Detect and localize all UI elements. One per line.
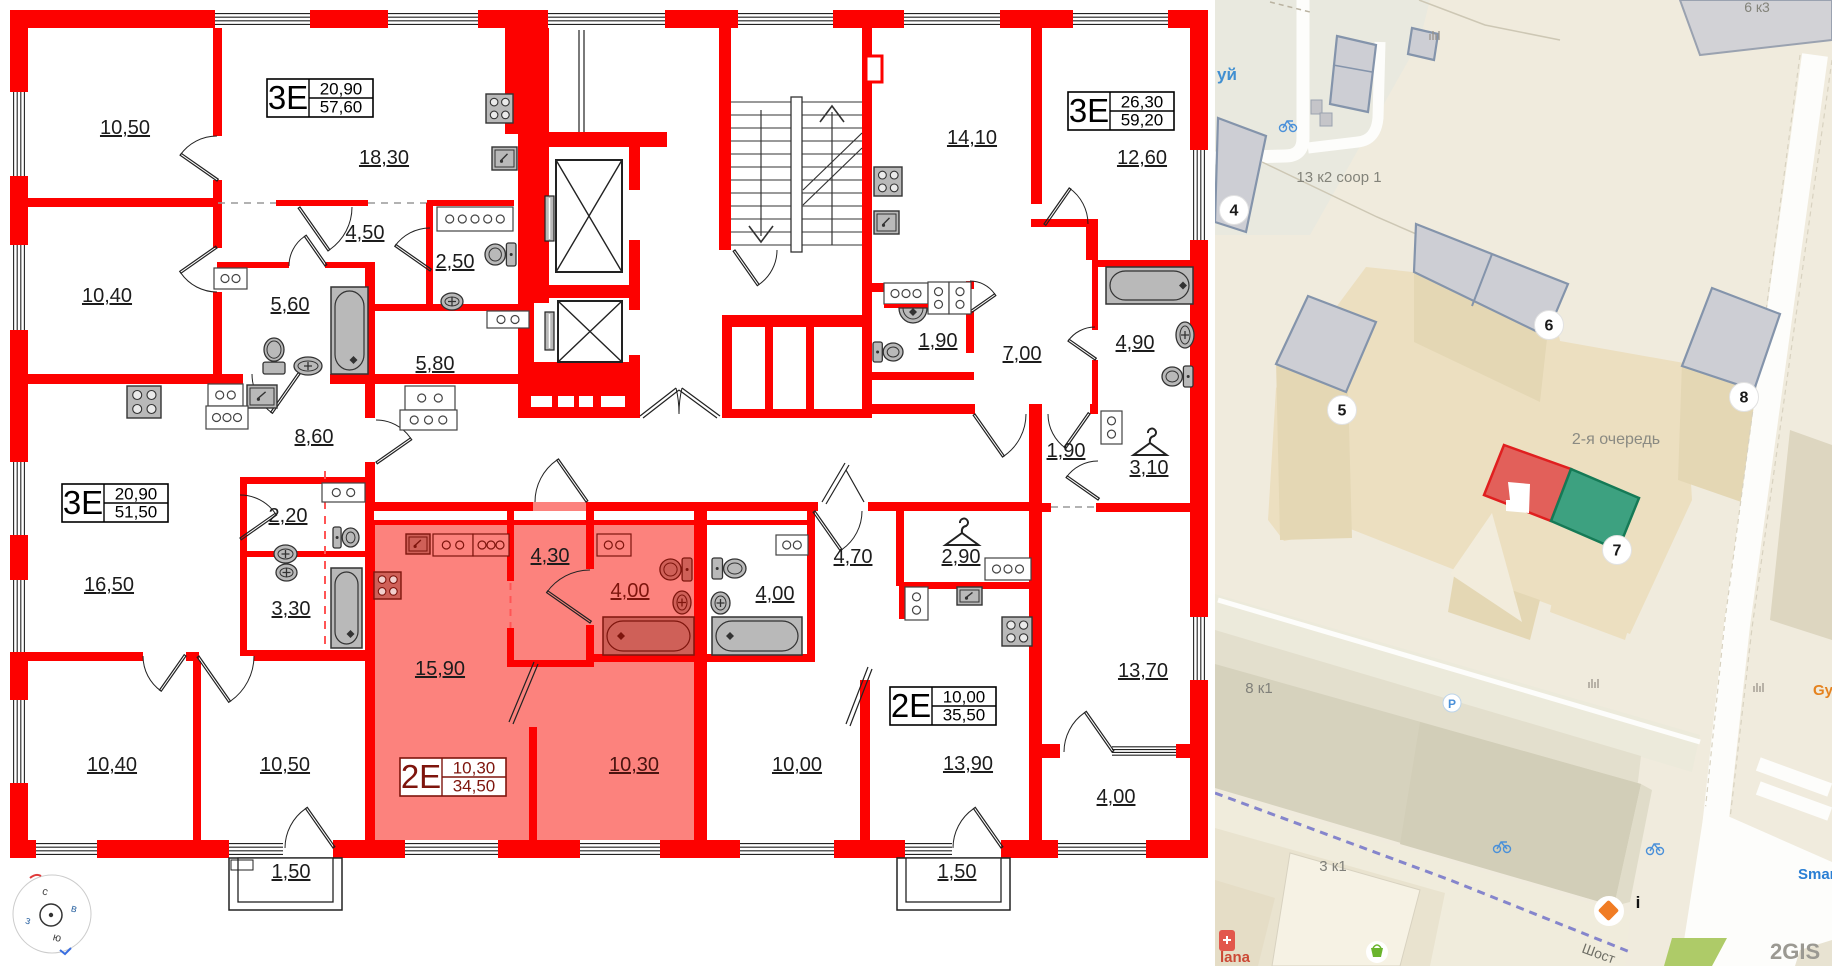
svg-text:lana: lana: [1220, 949, 1251, 966]
svg-text:4,00: 4,00: [611, 580, 650, 602]
svg-text:10,40: 10,40: [82, 285, 132, 307]
svg-text:1,90: 1,90: [1047, 440, 1086, 462]
svg-text:8 к1: 8 к1: [1245, 680, 1272, 697]
svg-text:2,50: 2,50: [436, 251, 475, 273]
svg-text:1,50: 1,50: [938, 861, 977, 883]
svg-text:Smart: Smart: [1798, 866, 1832, 883]
svg-text:14,10: 14,10: [947, 127, 997, 149]
svg-text:4,00: 4,00: [756, 583, 795, 605]
svg-text:8,60: 8,60: [295, 426, 334, 448]
svg-text:4,50: 4,50: [346, 222, 385, 244]
svg-text:10,00: 10,00: [943, 688, 986, 707]
svg-text:26,30: 26,30: [1121, 93, 1164, 112]
svg-text:4,30: 4,30: [531, 545, 570, 567]
svg-text:15,90: 15,90: [415, 658, 465, 680]
svg-text:5: 5: [1338, 403, 1347, 420]
svg-text:3 к1: 3 к1: [1319, 858, 1346, 875]
svg-text:1,90: 1,90: [919, 330, 958, 352]
svg-text:57,60: 57,60: [320, 98, 363, 117]
svg-text:10,50: 10,50: [260, 754, 310, 776]
svg-text:3,10: 3,10: [1130, 457, 1169, 479]
svg-text:i: i: [1636, 893, 1641, 912]
svg-text:P: P: [1448, 697, 1456, 711]
svg-text:59,20: 59,20: [1121, 111, 1164, 130]
svg-text:5,60: 5,60: [271, 294, 310, 316]
svg-text:10,00: 10,00: [772, 754, 822, 776]
svg-text:4: 4: [1230, 203, 1239, 220]
svg-text:3Е: 3Е: [1069, 92, 1109, 129]
svg-text:20,90: 20,90: [320, 80, 363, 99]
svg-text:2,20: 2,20: [269, 505, 308, 527]
svg-text:уй: уй: [1217, 65, 1237, 84]
svg-text:6 к3: 6 к3: [1744, 0, 1770, 15]
svg-text:10,50: 10,50: [100, 117, 150, 139]
svg-text:3Е: 3Е: [63, 484, 103, 521]
svg-text:10,40: 10,40: [87, 754, 137, 776]
svg-text:10,30: 10,30: [453, 759, 496, 778]
svg-text:6: 6: [1545, 318, 1554, 335]
svg-text:4,70: 4,70: [834, 546, 873, 568]
svg-text:2Е: 2Е: [401, 758, 441, 795]
svg-text:51,50: 51,50: [115, 503, 158, 522]
svg-text:13,70: 13,70: [1118, 660, 1168, 682]
svg-text:13 к2 соор 1: 13 к2 соор 1: [1296, 169, 1381, 186]
svg-text:16,50: 16,50: [84, 574, 134, 596]
svg-text:34,50: 34,50: [453, 777, 496, 796]
svg-text:2GIS: 2GIS: [1770, 939, 1820, 964]
svg-text:10,30: 10,30: [609, 754, 659, 776]
svg-text:7,00: 7,00: [1003, 343, 1042, 365]
svg-text:Gym: Gym: [1813, 682, 1832, 699]
svg-text:3,30: 3,30: [272, 598, 311, 620]
svg-text:7: 7: [1613, 543, 1622, 560]
svg-text:5,80: 5,80: [416, 353, 455, 375]
svg-text:2-я очередь: 2-я очередь: [1572, 431, 1660, 448]
svg-text:12,60: 12,60: [1117, 147, 1167, 169]
svg-text:2,90: 2,90: [942, 546, 981, 568]
svg-text:2Е: 2Е: [891, 687, 931, 724]
svg-text:4,00: 4,00: [1097, 786, 1136, 808]
svg-text:18,30: 18,30: [359, 147, 409, 169]
svg-text:35,50: 35,50: [943, 706, 986, 725]
svg-text:13,90: 13,90: [943, 753, 993, 775]
svg-text:3Е: 3Е: [268, 79, 308, 116]
svg-text:4,90: 4,90: [1116, 332, 1155, 354]
svg-text:20,90: 20,90: [115, 485, 158, 504]
svg-text:8: 8: [1740, 390, 1749, 407]
svg-text:1,50: 1,50: [272, 861, 311, 883]
